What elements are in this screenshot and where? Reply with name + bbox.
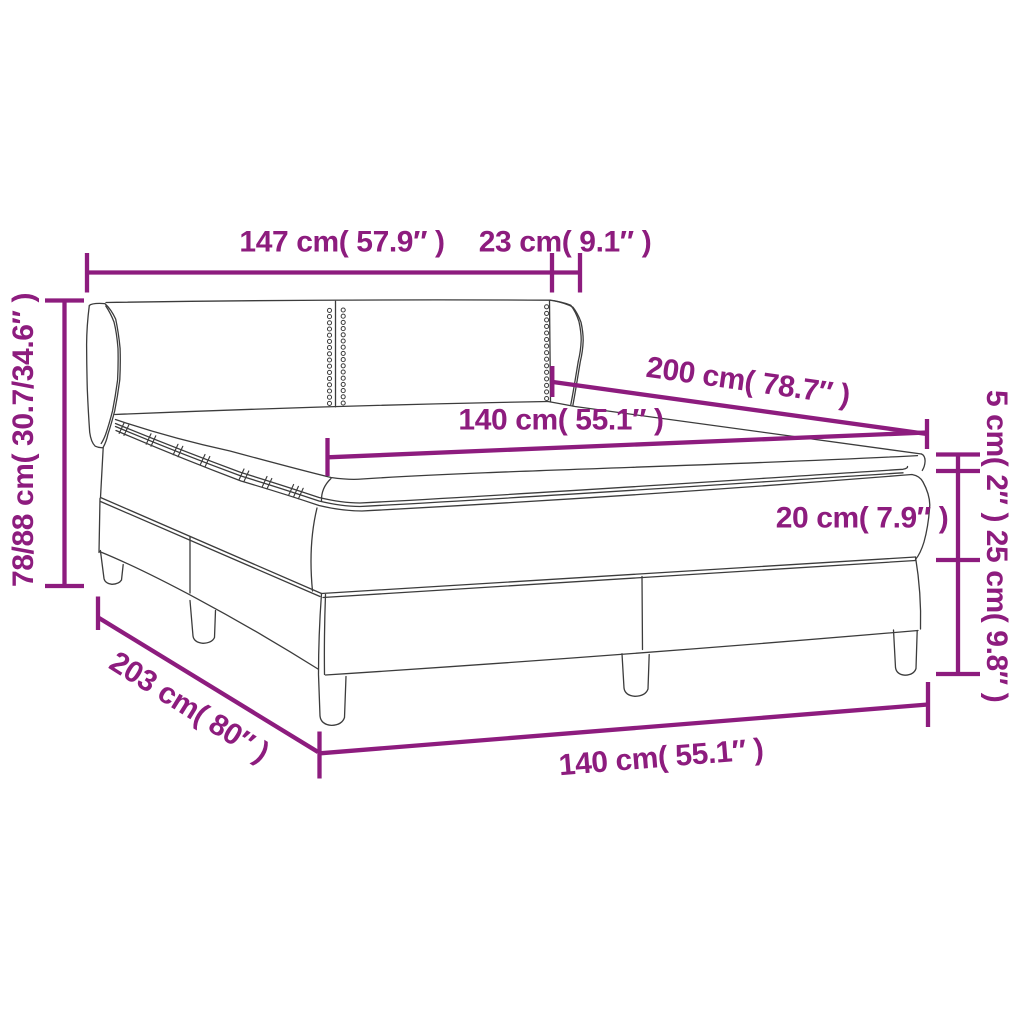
svg-text:140 cm( 55.1″ ): 140 cm( 55.1″ )	[558, 733, 765, 782]
svg-text:78/88 cm( 30.7/34.6″ ): 78/88 cm( 30.7/34.6″ )	[7, 293, 40, 587]
svg-text:140 cm( 55.1″ ): 140 cm( 55.1″ )	[458, 404, 663, 437]
svg-text:20 cm( 7.9″ ): 20 cm( 7.9″ )	[776, 502, 949, 535]
svg-text:5 cm( 2″ ): 5 cm( 2″ )	[980, 390, 1013, 522]
svg-text:203 cm( 80″ ): 203 cm( 80″ )	[104, 645, 275, 769]
svg-text:25 cm( 9.8″ ): 25 cm( 9.8″ )	[980, 530, 1013, 703]
svg-text:200 cm( 78.7″ ): 200 cm( 78.7″ )	[644, 351, 852, 412]
svg-text:147 cm( 57.9″ ): 147 cm( 57.9″ )	[239, 226, 444, 259]
svg-text:23 cm( 9.1″ ): 23 cm( 9.1″ )	[479, 226, 652, 259]
